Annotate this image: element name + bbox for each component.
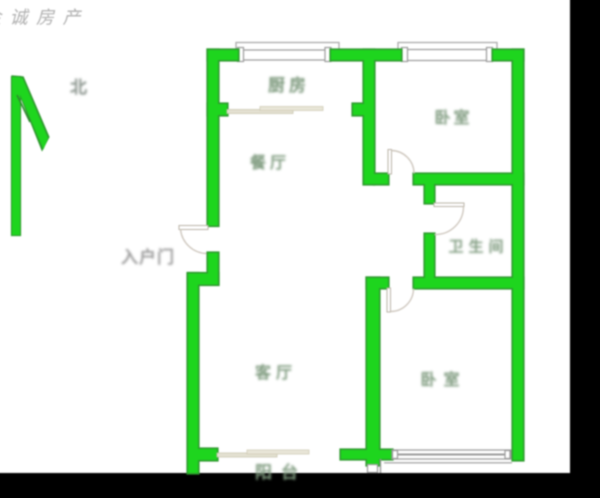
- svg-text:厨房: 厨房: [268, 75, 310, 95]
- svg-text:卧室: 卧室: [434, 108, 472, 127]
- svg-text:入户门: 入户门: [121, 247, 175, 267]
- svg-text:卫生间: 卫生间: [448, 238, 508, 256]
- svg-text:阳台: 阳台: [255, 462, 307, 482]
- svg-text:北: 北: [70, 78, 87, 97]
- svg-text:客厅: 客厅: [255, 363, 297, 382]
- svg-text:卧室: 卧室: [420, 370, 466, 389]
- svg-text:餐厅: 餐厅: [249, 153, 290, 172]
- svg-text:金诚房产: 金诚房产: [0, 8, 89, 28]
